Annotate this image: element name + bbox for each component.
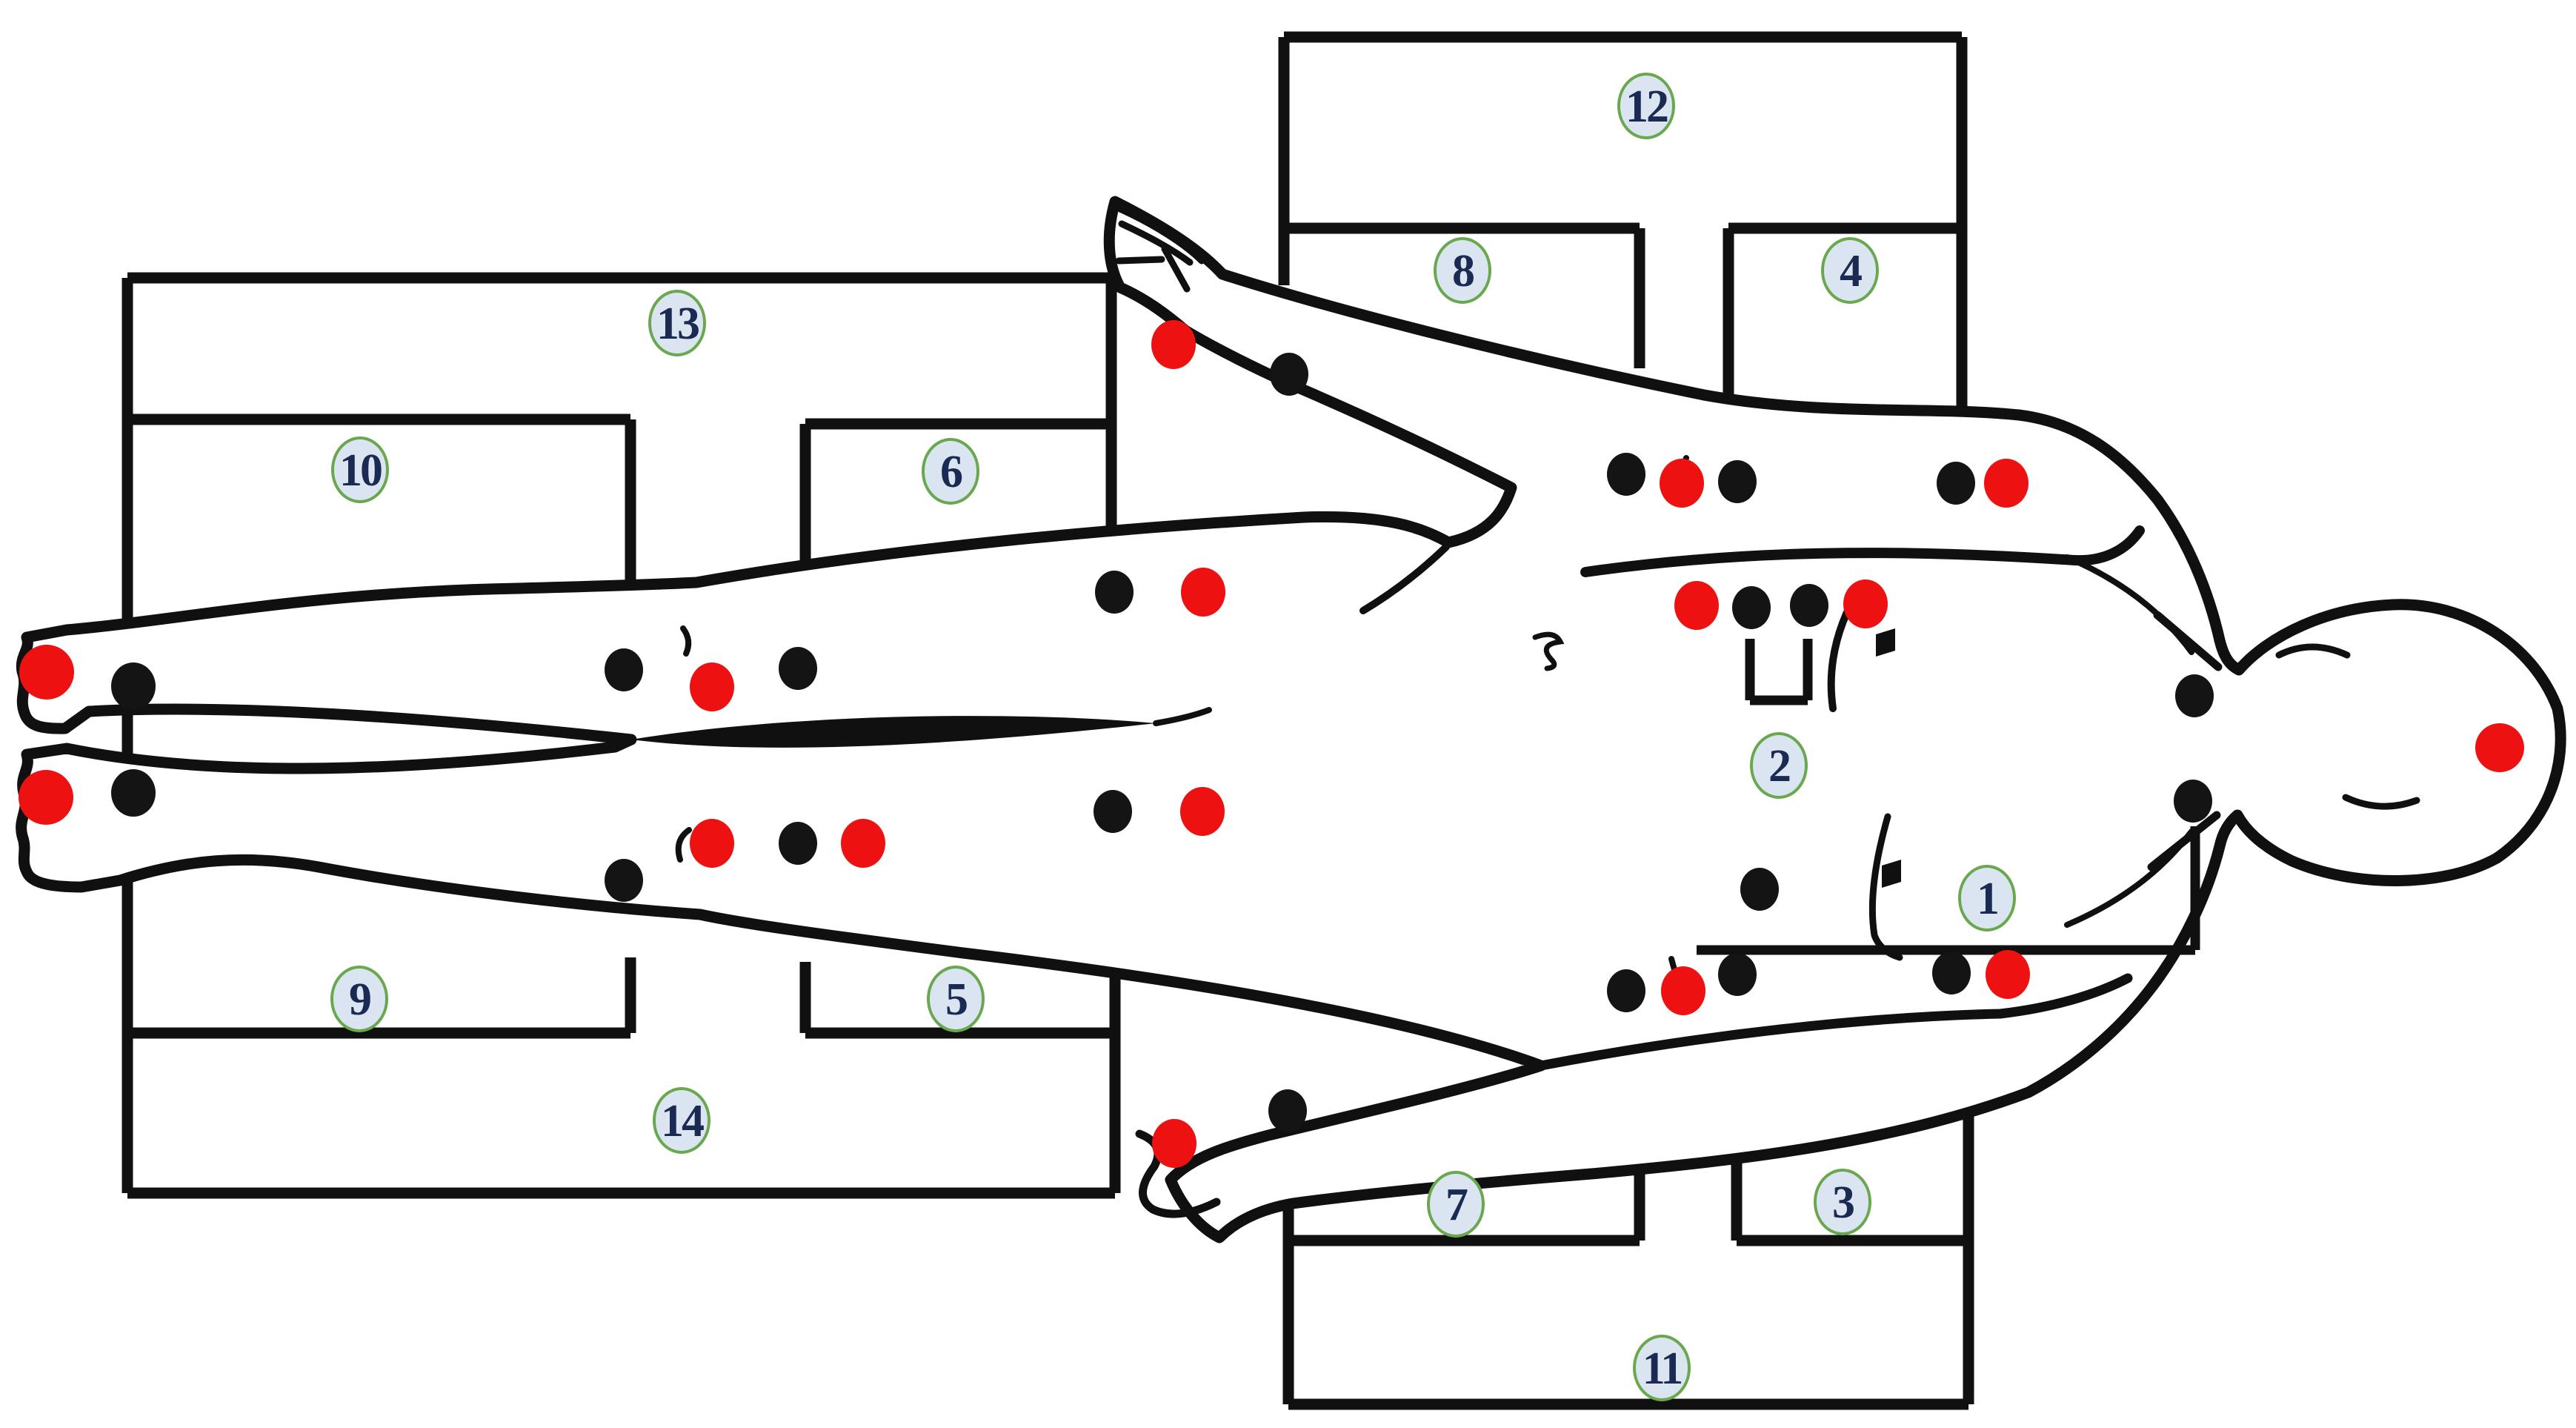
body-map-svg: 1234567891011121314	[0, 0, 2576, 1428]
region-label-number: 14	[661, 1096, 704, 1146]
red-marker-dot	[1180, 787, 1225, 836]
red-marker-dot	[1843, 579, 1888, 628]
region-label-7: 7	[1428, 1172, 1483, 1236]
region-label-3: 3	[1815, 1170, 1870, 1234]
region-label-13: 13	[650, 291, 705, 355]
between-legs-gap	[248, 721, 322, 735]
region-label-number: 10	[339, 445, 382, 496]
black-marker-dot	[1607, 969, 1645, 1012]
red-marker-dot	[690, 662, 734, 711]
red-marker-dot	[1674, 581, 1719, 630]
region-label-number: 3	[1832, 1178, 1854, 1228]
body-map-diagram: 1234567891011121314	[0, 0, 2576, 1428]
region-label-number: 4	[1840, 246, 1862, 296]
region-label-number: 12	[1625, 82, 1668, 132]
region-label-number: 9	[349, 974, 370, 1025]
region-label-number: 5	[945, 974, 967, 1025]
region-label-4: 4	[1823, 239, 1877, 302]
black-marker-dot	[1270, 353, 1308, 396]
black-marker-dot	[779, 822, 817, 865]
red-marker-dot	[690, 819, 734, 868]
black-marker-dot	[1732, 586, 1771, 629]
black-marker-dot	[605, 859, 643, 902]
region-label-number: 11	[1643, 1344, 1682, 1394]
black-marker-dot	[1095, 571, 1134, 614]
black-marker-dot	[1094, 790, 1132, 833]
region-label-2: 2	[1751, 734, 1806, 797]
red-marker-dot	[19, 770, 73, 825]
red-marker-dot	[1181, 568, 1225, 617]
black-marker-dot	[605, 648, 643, 691]
region-label-9: 9	[332, 967, 387, 1031]
red-marker-dot	[841, 819, 885, 868]
black-marker-dot	[1937, 462, 1975, 505]
black-marker-dot	[111, 662, 156, 710]
black-marker-dot	[779, 647, 817, 690]
region-label-number: 1	[1977, 874, 1997, 924]
black-marker-dot	[2174, 780, 2212, 823]
black-marker-dot	[1740, 868, 1779, 911]
red-marker-dot	[19, 645, 74, 700]
red-marker-dot	[1152, 1119, 1197, 1168]
region-label-number: 6	[940, 447, 962, 497]
region-label-5: 5	[928, 967, 983, 1031]
red-marker-dot	[2475, 723, 2524, 772]
black-marker-dot	[1607, 453, 1645, 496]
region-label-10: 10	[333, 438, 387, 502]
red-marker-dot	[1151, 320, 1196, 369]
region-label-number: 7	[1445, 1180, 1468, 1230]
region-label-14: 14	[654, 1089, 709, 1152]
black-marker-dot	[1718, 460, 1757, 503]
red-marker-dot	[1661, 966, 1705, 1015]
black-marker-dot	[1268, 1089, 1307, 1132]
region-label-1: 1	[1960, 866, 2014, 930]
region-label-12: 12	[1619, 74, 1674, 138]
region-label-6: 6	[923, 439, 978, 503]
red-marker-dot	[1984, 459, 2028, 508]
red-marker-dot	[1986, 950, 2030, 999]
black-marker-dot	[2175, 674, 2214, 717]
red-marker-dot	[1660, 459, 1704, 508]
black-marker-dot	[111, 769, 156, 817]
region-label-number: 2	[1768, 741, 1790, 791]
region-label-number: 8	[1452, 246, 1474, 296]
black-marker-dot	[1932, 952, 1971, 994]
region-label-11: 11	[1634, 1336, 1689, 1400]
region-label-number: 13	[656, 299, 699, 349]
black-marker-dot	[1790, 584, 1828, 627]
black-marker-dot	[1718, 953, 1757, 996]
region-label-8: 8	[1435, 239, 1490, 302]
